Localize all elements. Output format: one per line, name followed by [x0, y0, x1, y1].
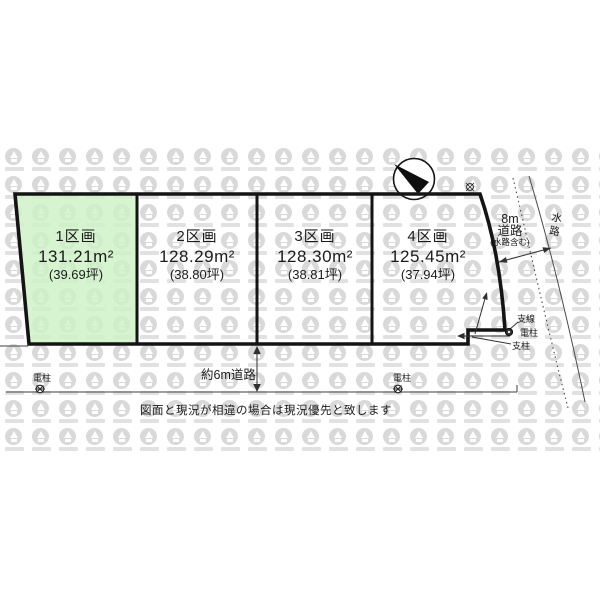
south-road-label: 約6m道路 [201, 364, 256, 383]
east-road-label: 8m 道路 (水路含む) [490, 213, 530, 247]
pole-label-corner: 電柱 [520, 326, 538, 339]
plot4-label: 4区画 125.45m² (37.94坪) [390, 227, 466, 283]
plot4-area-tsubo: (37.94坪) [390, 267, 466, 283]
pole-label-right: 電柱 [393, 371, 411, 384]
plot3-name: 3区画 [277, 227, 353, 246]
plot2-area-m2: 128.29m² [159, 246, 235, 267]
guy-wire-arrow [475, 292, 488, 334]
plot4-area-m2: 125.45m² [390, 246, 466, 267]
disclaimer-text: 図面と現況が相違の場合は現況優先と致します [140, 402, 392, 418]
east-road-dimension-arrow [499, 247, 551, 263]
waterway-solid-line [529, 176, 585, 402]
plot2-name: 2区画 [159, 227, 235, 246]
support-pole-pointer-line [472, 337, 511, 344]
plot4-name: 4区画 [390, 227, 466, 246]
pole-icon-top-right [466, 183, 474, 191]
support-pole-label: 支柱 [512, 339, 530, 352]
support-pole-arrow [457, 333, 510, 339]
plot2-area-tsubo: (38.80坪) [159, 267, 235, 283]
pole-label-left: 電柱 [33, 371, 51, 384]
plot1-name: 1区画 [38, 227, 114, 246]
pole-icon-corner [505, 328, 512, 335]
plot1-area-m2: 131.21m² [38, 246, 114, 267]
diagram-linework [0, 0, 600, 600]
land-plot-diagram: 1区画 131.21m² (39.69坪) 2区画 128.29m² (38.8… [0, 0, 600, 600]
plot2-label: 2区画 128.29m² (38.80坪) [159, 227, 235, 283]
plot1-area-tsubo: (39.69坪) [38, 267, 114, 283]
plot3-area-tsubo: (38.81坪) [277, 267, 353, 283]
plot1-label: 1区画 131.21m² (39.69坪) [38, 227, 114, 283]
guy-wire-label: 支線 [517, 312, 535, 325]
plot3-area-m2: 128.30m² [277, 246, 353, 267]
plot3-label: 3区画 128.30m² (38.81坪) [277, 227, 353, 283]
east-road-word: 道路 [490, 225, 530, 237]
east-road-note: (水路含む) [490, 237, 530, 247]
